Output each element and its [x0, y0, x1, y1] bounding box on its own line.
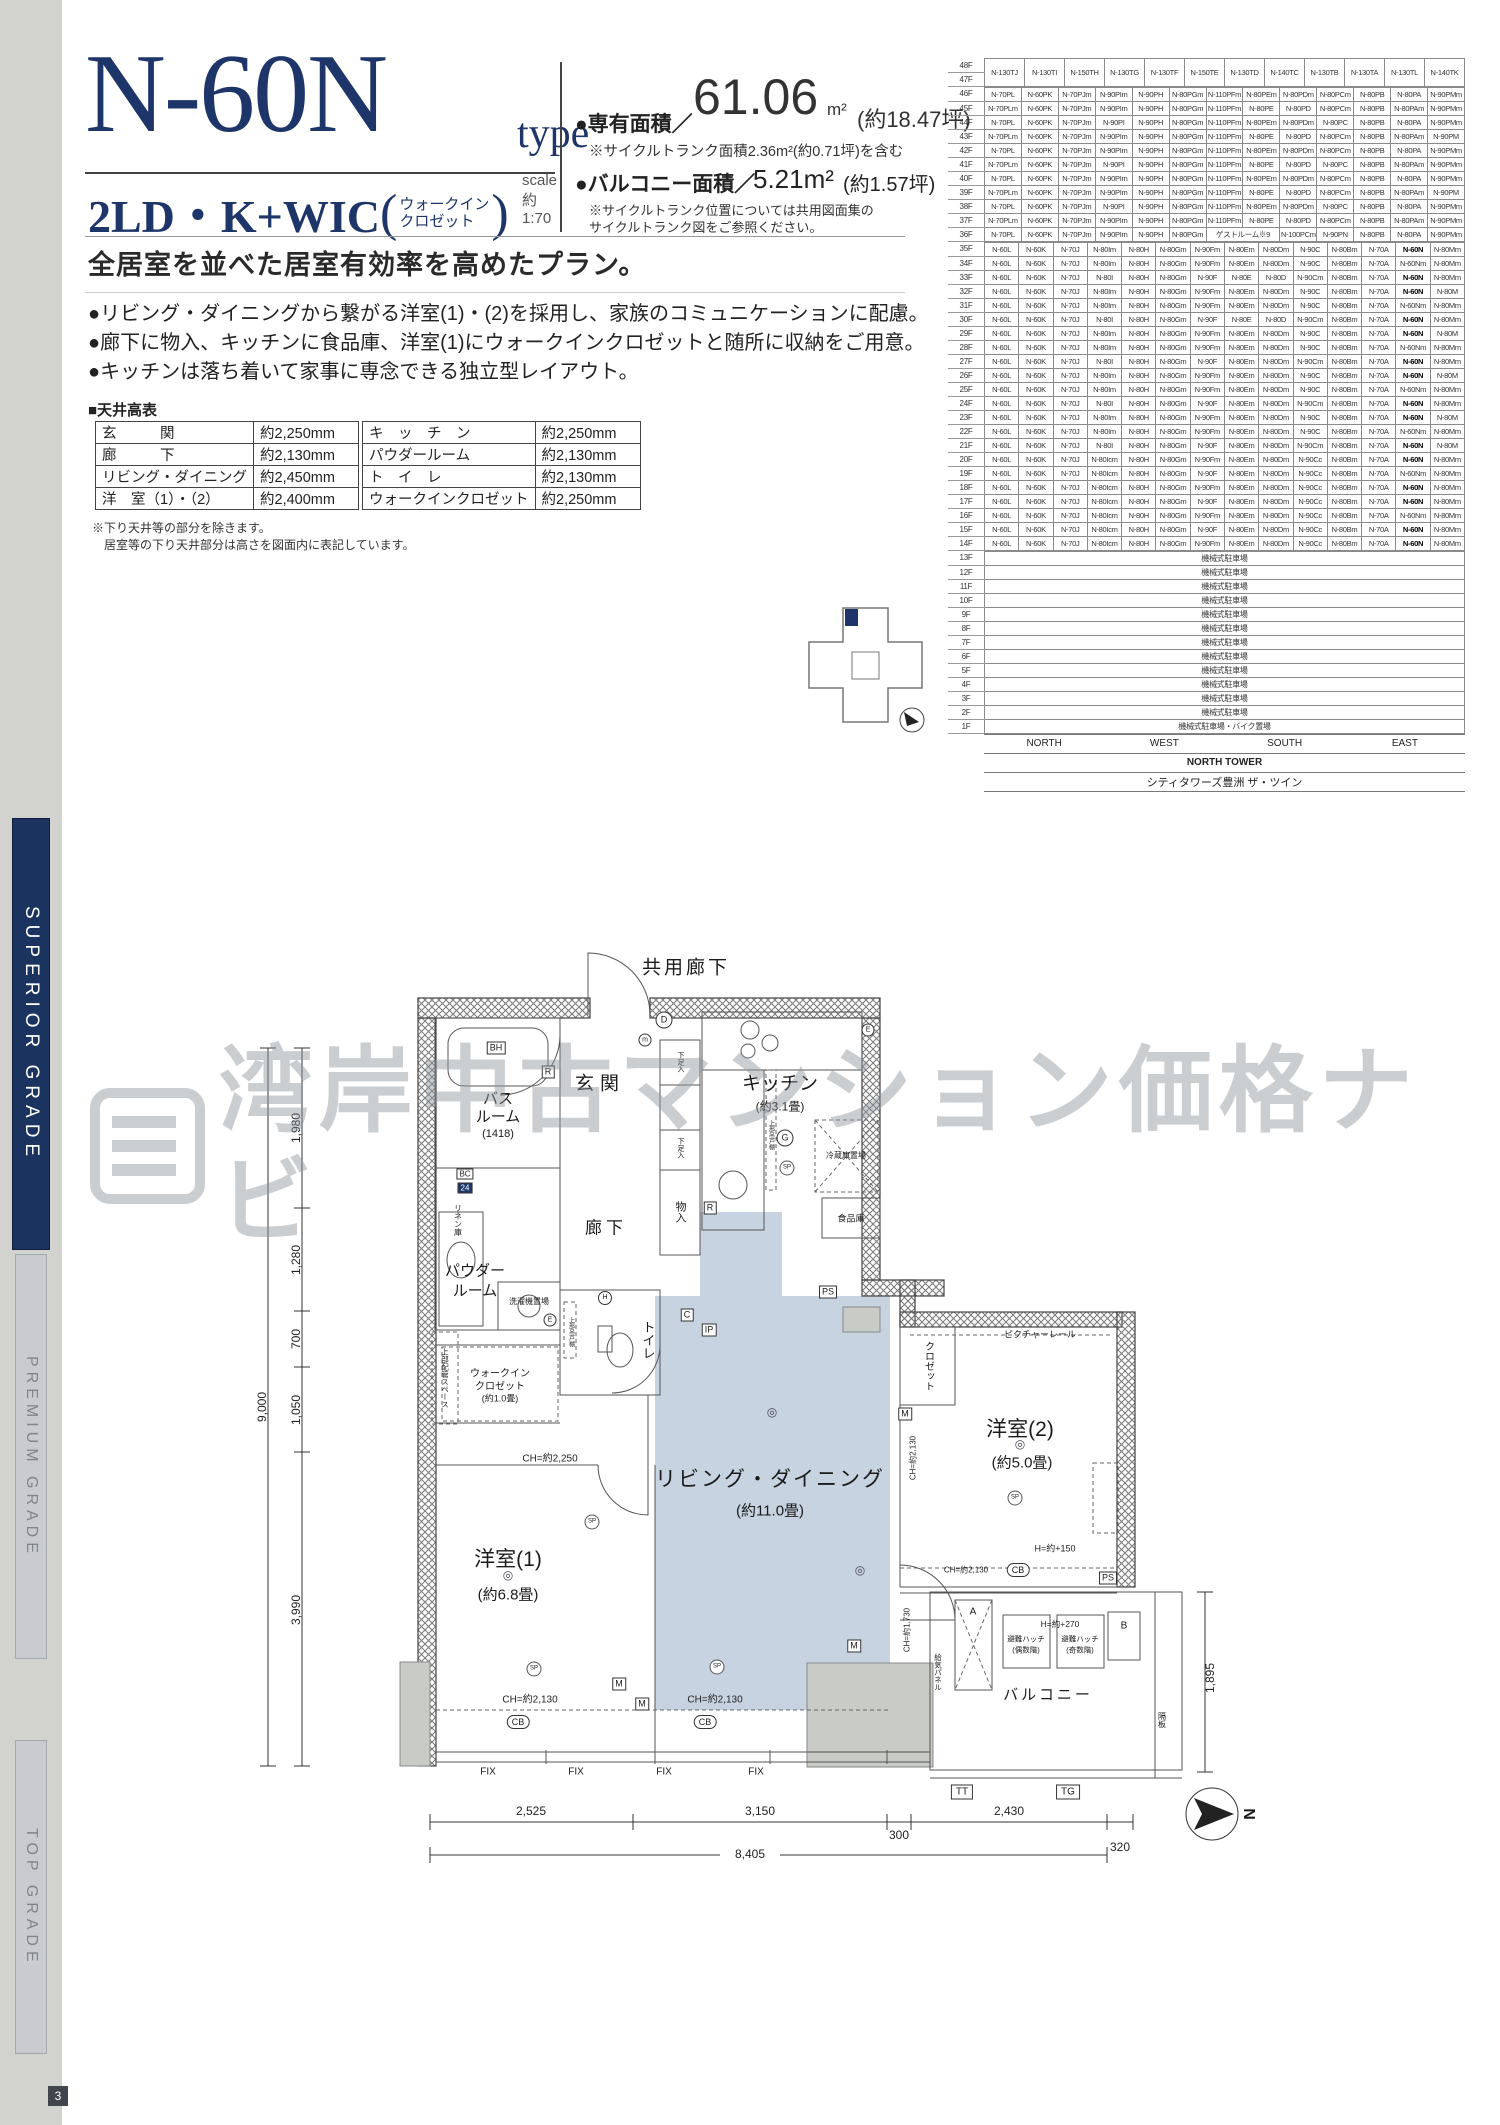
unit-cell: ゲストルーム※9 — [1206, 227, 1280, 241]
unit-cell: N-60PK — [1021, 157, 1058, 171]
dim-left-3: 700 — [289, 1329, 303, 1349]
feature-bullet: ●リビング・ダイニングから繋がる洋室(1)・(2)を採用し、家族のコミュニケーシ… — [88, 300, 929, 329]
unit-cell: N-100PCm — [1280, 227, 1317, 241]
unit-cell: N-70PJm — [1058, 185, 1095, 199]
unit-cell: N-80Im — [1087, 410, 1121, 424]
unit-cell: N-80PGm — [1169, 129, 1206, 143]
unit-cell: N-60N — [1396, 284, 1430, 298]
unit-cell: N-80Icm — [1087, 522, 1121, 536]
unit-cell: N-80Bm — [1327, 396, 1361, 410]
unit-cell: N-80Bm — [1327, 522, 1361, 536]
dim-left-4: 1,050 — [289, 1395, 303, 1425]
unit-cell: N-80Mm — [1430, 340, 1464, 354]
unit-cell: N-70J — [1053, 508, 1087, 522]
unit-cell: N-80Mm — [1430, 256, 1464, 270]
unit-cell: N-80H — [1122, 396, 1156, 410]
unit-cell: N-80Bm — [1327, 368, 1361, 382]
ceiling-value: 約2,250mm — [254, 422, 359, 444]
unit-cell: N-80PD — [1280, 157, 1317, 171]
unit-cell: N-70PJm — [1058, 171, 1095, 185]
room-label-common-corridor: 共用廊下 — [642, 953, 730, 980]
floor-table-section: 13F機械式駐車場12F機械式駐車場11F機械式駐車場10F機械式駐車場9F機械… — [948, 551, 1465, 734]
floor-label: 27F — [948, 354, 985, 368]
unit-cell: N-60K — [1019, 522, 1053, 536]
floor-label: 19F — [948, 466, 985, 480]
ch-label: CH=約2,250 — [522, 1450, 577, 1465]
unit-cell: N-80Em — [1224, 452, 1258, 466]
unit-cell: N-80Im — [1087, 284, 1121, 298]
unit-cell: N-60L — [985, 536, 1019, 550]
unit-cell: N-90Fm — [1190, 424, 1224, 438]
ceiling-value: 約2,130mm — [535, 444, 640, 466]
unit-cell: N-80Gm — [1156, 466, 1190, 480]
unit-cell: N-70J — [1053, 424, 1087, 438]
ceiling-room: リビング・ダイニング — [96, 466, 254, 488]
unit-cell: N-70J — [1053, 396, 1087, 410]
unit-cell: N-80H — [1122, 466, 1156, 480]
doorphone-mark: D — [656, 1012, 673, 1029]
unit-cell: N-80PD — [1280, 101, 1317, 115]
unit-cell: N-90Fm — [1190, 340, 1224, 354]
unit-cell: N-60K — [1019, 354, 1053, 368]
grade-band-label: PREMIUM GRADE — [22, 1356, 40, 1558]
balcony-note-line2: サイクルトランク図をご参照ください。 — [589, 220, 822, 235]
unit-cell: N-60PK — [1021, 87, 1058, 101]
floor-label: 36F — [948, 227, 985, 241]
unit-cell: N-80Em — [1224, 284, 1258, 298]
unit-cell: N-80Mm — [1430, 494, 1464, 508]
unit-cell: N-60PK — [1021, 227, 1058, 241]
picture-rail-label: ピクチャーレール — [1004, 1328, 1076, 1341]
unit-cell: N-90Fm — [1190, 452, 1224, 466]
floor-label: 14F — [948, 536, 985, 550]
unit-cell: N-60L — [985, 270, 1019, 284]
unit-cell: N-80PEm — [1243, 115, 1280, 129]
floor-label: 39F — [948, 185, 985, 199]
unit-cell: N-130TD — [1225, 59, 1265, 87]
floor-label: 43F — [948, 129, 985, 143]
dim-bottom-3: 300 — [889, 1828, 909, 1842]
unit-cell: N-80H — [1122, 382, 1156, 396]
unit-cell: N-70J — [1053, 284, 1087, 298]
unit-cell: 機械式駐車場 — [985, 551, 1465, 565]
unit-cell: N-80Mm — [1430, 508, 1464, 522]
unit-cell: N-80Im — [1087, 326, 1121, 340]
room-label-bedroom1-size: (約6.8畳) — [478, 1584, 539, 1605]
unit-cell: N-70A — [1362, 354, 1396, 368]
unit-cell: N-70A — [1362, 424, 1396, 438]
paren-open: ( — [380, 184, 397, 243]
page-number: 3 — [48, 2086, 68, 2106]
direction-label: EAST — [1345, 738, 1465, 749]
unit-cell: N-80PCm — [1317, 143, 1354, 157]
unit-cell: N-80Dm — [1259, 298, 1293, 312]
unit-cell: N-110PFm — [1206, 199, 1243, 213]
room-label-bedroom2-size: (約5.0畳) — [992, 1452, 1053, 1473]
unit-cell: N-110PFm — [1206, 157, 1243, 171]
unit-cell: N-60L — [985, 396, 1019, 410]
unit-cell: N-70A — [1362, 410, 1396, 424]
unit-cell: N-90PH — [1132, 129, 1169, 143]
unit-cell: N-70PJm — [1058, 101, 1095, 115]
unit-cell: N-70J — [1053, 242, 1087, 256]
unit-cell: N-60L — [985, 494, 1019, 508]
unit-cell: N-80Dm — [1259, 466, 1293, 480]
unit-cell: N-60K — [1019, 242, 1053, 256]
unit-cell: N-80Bm — [1327, 424, 1361, 438]
unit-cell: N-90Cm — [1293, 438, 1327, 452]
unit-cell: N-80Em — [1224, 494, 1258, 508]
unit-cell: N-90PN — [1317, 227, 1354, 241]
unit-cell: N-80PA — [1391, 199, 1428, 213]
unit-cell: N-90F — [1190, 312, 1224, 326]
unit-cell: N-60N — [1396, 480, 1430, 494]
unit-cell: N-80Icm — [1087, 466, 1121, 480]
title-vertical-divider — [560, 62, 562, 232]
meter-mark: m — [639, 1034, 652, 1047]
unit-cell: N-70PLm — [985, 157, 1022, 171]
room-label-living-dining: リビング・ダイニング — [655, 1463, 885, 1493]
unit-cell: N-90C — [1293, 410, 1327, 424]
unit-cell: N-80Em — [1224, 522, 1258, 536]
unit-cell: N-80Bm — [1327, 480, 1361, 494]
unit-cell: N-60Nm — [1396, 508, 1430, 522]
unit-cell: N-70PJm — [1058, 213, 1095, 227]
unit-cell: N-70J — [1053, 312, 1087, 326]
unit-cell: N-60K — [1019, 494, 1053, 508]
unit-cell: N-80PCm — [1317, 101, 1354, 115]
unit-cell: N-90Fm — [1190, 298, 1224, 312]
unit-cell: N-60L — [985, 480, 1019, 494]
unit-cell: N-90Cm — [1293, 270, 1327, 284]
unit-cell: N-80Dm — [1259, 424, 1293, 438]
unit-cell: N-80E — [1224, 312, 1258, 326]
unit-cell: 機械式駐車場 — [985, 705, 1465, 719]
unit-cell: N-70A — [1362, 326, 1396, 340]
unit-cell: N-70PLm — [985, 213, 1022, 227]
floor-label: 37F — [948, 213, 985, 227]
unit-cell: N-80H — [1122, 354, 1156, 368]
unit-cell: N-80Gm — [1156, 382, 1190, 396]
washer-space-label: 洗濯機置場 — [508, 1297, 550, 1307]
unit-cell: N-80Icm — [1087, 480, 1121, 494]
unit-cell: N-90Cc — [1293, 452, 1327, 466]
unit-cell: 機械式駐車場 — [985, 635, 1465, 649]
unit-position-marker — [845, 609, 858, 626]
wic-label-2: クロゼット — [475, 1378, 525, 1393]
unit-cell: N-60N — [1396, 452, 1430, 466]
unit-cell: N-80PA — [1391, 143, 1428, 157]
unit-cell: N-80Bm — [1327, 242, 1361, 256]
unit-cell: N-90PIm — [1095, 129, 1132, 143]
unit-cell: N-80PB — [1354, 171, 1391, 185]
unit-cell: N-90Cc — [1293, 522, 1327, 536]
unit-cell: N-60K — [1019, 536, 1053, 550]
remocon-mark: R — [542, 1066, 555, 1079]
unit-cell: N-80Em — [1224, 536, 1258, 550]
linen-cabinet-label: リネン庫 — [453, 1204, 464, 1236]
floor-label: 30F — [948, 312, 985, 326]
floor-label: 9F — [948, 607, 985, 621]
cb-mark: CB — [694, 1715, 717, 1729]
area-label: ●専有面積／ — [575, 108, 693, 138]
unit-cell: N-80Gm — [1156, 522, 1190, 536]
unit-cell: N-70J — [1053, 256, 1087, 270]
unit-cell: N-80Mm — [1430, 452, 1464, 466]
unit-cell: N-90PI — [1095, 199, 1132, 213]
unit-cell: N-80Dm — [1259, 396, 1293, 410]
cb-mark: CB — [1007, 1563, 1030, 1577]
tower-name: NORTH TOWER — [984, 754, 1465, 773]
unit-cell: N-110PFm — [1206, 129, 1243, 143]
unit-cell: N-90C — [1293, 368, 1327, 382]
grade-band-label: SUPERIOR GRADE — [20, 906, 42, 1162]
ceiling-value: 約2,130mm — [254, 444, 359, 466]
unit-cell: N-80Em — [1224, 340, 1258, 354]
ceiling-light-mark: ◎ — [855, 1563, 865, 1577]
unit-cell: N-70PJm — [1058, 157, 1095, 171]
floor-label: 40F — [948, 171, 985, 185]
floor-label: 28F — [948, 340, 985, 354]
unit-cell: N-80PC — [1317, 157, 1354, 171]
floor-label: 5F — [948, 663, 985, 677]
unit-cell: N-70PL — [985, 199, 1022, 213]
h270-label: H=約+270 — [1041, 1618, 1080, 1630]
unit-cell: N-70A — [1362, 242, 1396, 256]
floor-label: 17F — [948, 494, 985, 508]
unit-cell: N-80Dm — [1259, 494, 1293, 508]
unit-cell: N-60K — [1019, 368, 1053, 382]
unit-cell: N-90F — [1190, 494, 1224, 508]
floor-label: 18F — [948, 480, 985, 494]
unit-cell: N-90F — [1190, 466, 1224, 480]
unit-cell: N-80Bm — [1327, 452, 1361, 466]
unit-cell: N-60K — [1019, 438, 1053, 452]
unit-cell: N-80Em — [1224, 480, 1258, 494]
floor-label: 38F — [948, 199, 985, 213]
unit-cell: N-90Fm — [1190, 508, 1224, 522]
unit-cell: N-80PAm — [1391, 157, 1428, 171]
ceiling-room: ト イ レ — [363, 466, 536, 488]
ceiling-value: 約2,250mm — [535, 422, 640, 444]
unit-cell: N-80PCm — [1317, 129, 1354, 143]
unit-cell: N-80H — [1122, 298, 1156, 312]
plan-headline: 全居室を並べた居室有効率を高めたプラン。 — [88, 243, 646, 282]
unit-cell: N-80Dm — [1259, 326, 1293, 340]
unit-cell: N-60N — [1396, 522, 1430, 536]
floor-label: 8F — [948, 621, 985, 635]
unit-cell: 機械式駐車場 — [985, 677, 1465, 691]
unit-cell: N-60K — [1019, 270, 1053, 284]
unit-cell: N-80PGm — [1169, 115, 1206, 129]
unit-cell: N-70PLm — [985, 185, 1022, 199]
unit-cell: N-70PJm — [1058, 143, 1095, 157]
ceiling-table-right: キ ッ チ ン約2,250mm パウダールーム約2,130mm ト イ レ約2,… — [362, 421, 641, 510]
unit-cell: N-80Dm — [1259, 536, 1293, 550]
floor-label: 41F — [948, 157, 985, 171]
unit-cell: N-80Em — [1224, 326, 1258, 340]
unit-cell: N-90C — [1293, 298, 1327, 312]
unit-cell: N-110PFm — [1206, 143, 1243, 157]
unit-cell: N-80PA — [1391, 87, 1428, 101]
floor-label: 16F — [948, 508, 985, 522]
key-plan-diagram — [800, 600, 932, 740]
unit-cell: N-80PGm — [1169, 143, 1206, 157]
unit-cell: N-80Dm — [1259, 452, 1293, 466]
unit-cell: N-80H — [1122, 242, 1156, 256]
unit-cell: N-80Bm — [1327, 270, 1361, 284]
unit-cell: N-60N — [1396, 410, 1430, 424]
unit-cell: N-90PMm — [1428, 87, 1465, 101]
unit-cell: N-60K — [1019, 424, 1053, 438]
unit-cell: N-60N — [1396, 326, 1430, 340]
paren-line1: ウォークイン — [399, 196, 489, 213]
unit-cell: N-80Gm — [1156, 494, 1190, 508]
unit-cell: N-70J — [1053, 536, 1087, 550]
headline-divider — [85, 292, 905, 293]
dim-bottom-2: 3,150 — [745, 1804, 775, 1818]
ceiling-value: 約2,250mm — [535, 488, 640, 510]
unit-cell: N-70PL — [985, 227, 1022, 241]
area-unit: m² — [827, 100, 847, 120]
unit-cell: N-80PEm — [1243, 171, 1280, 185]
unit-cell: N-60N — [1396, 354, 1430, 368]
mb-mark: M — [612, 1678, 626, 1691]
unit-cell: N-70A — [1362, 298, 1396, 312]
unit-cell: N-70J — [1053, 522, 1087, 536]
unit-cell: N-60K — [1019, 480, 1053, 494]
floor-label: 46F — [948, 87, 985, 101]
unit-cell: N-90PH — [1132, 87, 1169, 101]
unit-cell: N-60Nm — [1396, 382, 1430, 396]
unit-cell: N-80I — [1087, 438, 1121, 452]
unit-cell: N-80H — [1122, 284, 1156, 298]
floor-label: 24F — [948, 396, 985, 410]
unit-cell: N-80PB — [1354, 101, 1391, 115]
unit-cell: N-140TC — [1265, 59, 1305, 87]
unit-cell: N-80Bm — [1327, 340, 1361, 354]
unit-cell: N-80PE — [1243, 213, 1280, 227]
unit-cell: N-90Cm — [1293, 354, 1327, 368]
unit-cell: N-80M — [1430, 284, 1464, 298]
unit-cell: N-70A — [1362, 396, 1396, 410]
unit-cell: N-60N — [1396, 270, 1430, 284]
unit-cell: N-80Gm — [1156, 270, 1190, 284]
direction-label: WEST — [1104, 738, 1224, 749]
unit-cell: N-90C — [1293, 424, 1327, 438]
sprinkler-mark: SP — [710, 1660, 725, 1675]
unit-cell: N-80PB — [1354, 115, 1391, 129]
bc-mark: BC — [456, 1169, 473, 1180]
floor-label: 1F — [948, 719, 985, 733]
unit-cell: N-80PCm — [1317, 185, 1354, 199]
unit-cell: N-80PE — [1243, 185, 1280, 199]
unit-cell: N-80PGm — [1169, 87, 1206, 101]
unit-cell: N-110PFm — [1206, 115, 1243, 129]
unit-cell: N-90Fm — [1190, 256, 1224, 270]
unit-cell: N-80Gm — [1156, 256, 1190, 270]
unit-cell: N-70PJm — [1058, 199, 1095, 213]
unit-cell: N-80PA — [1391, 115, 1428, 129]
unit-cell: N-80Mm — [1430, 480, 1464, 494]
unit-cell: N-60K — [1019, 312, 1053, 326]
floor-label: 42F — [948, 143, 985, 157]
grade-band-premium: PREMIUM GRADE — [15, 1254, 47, 1659]
fix-window-label: FIX — [480, 1767, 496, 1778]
floor-label: 33F — [948, 270, 985, 284]
unit-cell: N-80Im — [1087, 368, 1121, 382]
grade-band-top: TOP GRADE — [15, 1740, 47, 2054]
unit-cell: N-80Gm — [1156, 480, 1190, 494]
unit-cell: N-90C — [1293, 382, 1327, 396]
unit-cell: N-80Bm — [1327, 494, 1361, 508]
unit-cell: N-80PAm — [1391, 101, 1428, 115]
fix-window-label: FIX — [656, 1767, 672, 1778]
direction-label: NORTH — [984, 738, 1104, 749]
unit-cell: N-70J — [1053, 452, 1087, 466]
direction-label: SOUTH — [1225, 738, 1345, 749]
balcony-area-label: ●バルコニー面積／ — [575, 168, 755, 198]
unit-cell: N-80Gm — [1156, 452, 1190, 466]
unit-cell: N-80Gm — [1156, 354, 1190, 368]
unit-cell: N-80PDm — [1280, 199, 1317, 213]
mb-mark: M — [847, 1640, 861, 1653]
floor-label: 10F — [948, 593, 985, 607]
unit-cell: N-60N — [1396, 396, 1430, 410]
unit-cell: N-80PAm — [1391, 213, 1428, 227]
unit-cell: N-130TG — [1105, 59, 1145, 87]
unit-cell: N-90C — [1293, 242, 1327, 256]
unit-cell: N-80Bm — [1327, 438, 1361, 452]
floor-label: 20F — [948, 452, 985, 466]
unit-cell: N-90PMm — [1428, 199, 1465, 213]
unit-cell: 機械式駐車場 — [985, 565, 1465, 579]
unit-cell: N-80Mm — [1430, 242, 1464, 256]
unit-cell: N-70PLm — [985, 101, 1022, 115]
unit-cell: N-130TI — [1025, 59, 1065, 87]
unit-cell: 機械式駐車場 — [985, 691, 1465, 705]
grade-band-superior: SUPERIOR GRADE — [12, 818, 50, 1250]
unit-cell: N-80PCm — [1317, 213, 1354, 227]
unit-cell: N-80H — [1122, 522, 1156, 536]
unit-cell: N-80Gm — [1156, 438, 1190, 452]
unit-cell: N-90PMm — [1428, 115, 1465, 129]
e-mark: E — [862, 1024, 875, 1037]
unit-cell: N-80PCm — [1317, 171, 1354, 185]
feature-bullet: ●廊下に物入、キッチンに食品庫、洋室(1)にウォークインクロゼットと随所に収納を… — [88, 329, 929, 358]
unit-cell: N-80Em — [1224, 354, 1258, 368]
tower-footprint-outline — [809, 608, 922, 722]
feature-bullets: ●リビング・ダイニングから繋がる洋室(1)・(2)を採用し、家族のコミュニケーシ… — [88, 300, 929, 387]
floor-label: 31F — [948, 298, 985, 312]
unit-cell: N-80Icm — [1087, 536, 1121, 550]
unit-cell: N-80Bm — [1327, 326, 1361, 340]
unit-cell: N-80Dm — [1259, 480, 1293, 494]
unit-cell: N-80Mm — [1430, 536, 1464, 550]
unit-cell: N-80D — [1259, 270, 1293, 284]
ceiling-note: ※下り天井等の部分を除きます。 — [92, 520, 414, 537]
h150-label: H=約+150 — [1034, 1542, 1075, 1555]
unit-cell: N-80Bm — [1327, 382, 1361, 396]
unit-cell: N-90PH — [1132, 115, 1169, 129]
unit-cell: N-60K — [1019, 340, 1053, 354]
unit-cell: N-80Gm — [1156, 536, 1190, 550]
unit-cell: N-80Gm — [1156, 368, 1190, 382]
unit-cell: N-80PDm — [1280, 171, 1317, 185]
ceiling-room: ウォークインクロゼット — [363, 488, 536, 510]
unit-cell: N-80Em — [1224, 396, 1258, 410]
unit-cell: N-80H — [1122, 494, 1156, 508]
